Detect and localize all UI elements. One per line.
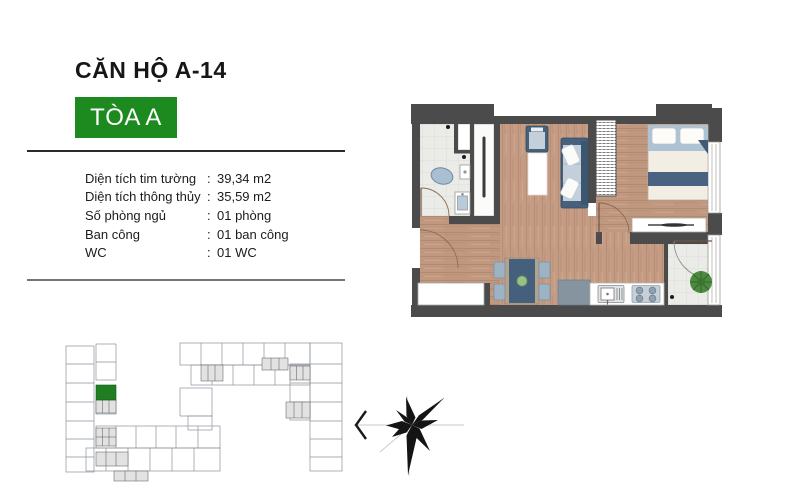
dining-chair xyxy=(539,284,550,300)
spec-separator: : xyxy=(207,171,217,186)
wall-closet-living xyxy=(494,124,500,224)
wall-bedroom-door-stub xyxy=(596,232,602,244)
spec-value: 01 WC xyxy=(217,245,257,260)
spec-label: Diện tích tim tường xyxy=(85,171,207,186)
building-badge: TÒA A xyxy=(75,97,177,138)
spec-value: 35,59 m2 xyxy=(217,189,271,204)
bedroom-window xyxy=(708,142,720,213)
wall-right-upper xyxy=(708,108,722,142)
dining-chair xyxy=(539,262,550,278)
ceiling-spot-icon xyxy=(446,125,450,129)
spec-separator: : xyxy=(207,208,217,223)
pillow xyxy=(652,128,676,144)
table-plant xyxy=(517,276,527,286)
hall-closet xyxy=(474,124,494,216)
spec-value: 39,34 m2 xyxy=(217,171,271,186)
ac-ledge xyxy=(418,283,484,305)
balcony-railing xyxy=(708,235,720,305)
spec-label: Ban công xyxy=(85,227,207,242)
wall-top-left-block xyxy=(411,104,494,124)
spec-label: Số phòng ngủ xyxy=(85,208,207,223)
ceiling-spot-icon xyxy=(462,155,466,159)
burner-icon xyxy=(636,295,643,302)
apartment-floor-plan xyxy=(398,88,732,322)
coffee-table xyxy=(528,153,547,195)
burner-icon xyxy=(649,295,656,302)
dining-table xyxy=(505,258,539,304)
building-badge-label: TÒA A xyxy=(90,104,162,132)
stove xyxy=(632,286,660,303)
core-blocks xyxy=(96,358,310,481)
bathroom-sink xyxy=(455,192,470,214)
page-title: CĂN HỘ A-14 xyxy=(75,57,227,84)
spec-separator: : xyxy=(207,189,217,204)
floor-plan-page: { "header": { "title": "CĂN HỘ A-14", "b… xyxy=(0,0,800,500)
burner-icon xyxy=(636,287,643,294)
spec-row-area-gross: Diện tích tim tường : 39,34 m2 xyxy=(85,169,355,188)
dining-chair xyxy=(494,284,505,300)
kitchen-cabinet xyxy=(558,280,590,305)
wall-top xyxy=(490,116,656,124)
shower-niche xyxy=(454,124,470,154)
spec-table: Diện tích tim tường : 39,34 m2 Diện tích… xyxy=(85,169,355,262)
kitchen-sink xyxy=(598,286,624,305)
bed-runner xyxy=(648,172,708,186)
wall-recess-side xyxy=(484,283,490,305)
wall-balcony-top-stub xyxy=(664,238,674,244)
wall-living-bedroom xyxy=(588,116,596,203)
spec-row-balcony: Ban công : 01 ban công xyxy=(85,225,355,244)
wall-bathroom-closet xyxy=(470,124,474,216)
spec-label: Diện tích thông thủy xyxy=(85,189,207,204)
spec-row-bedrooms: Số phòng ngủ : 01 phòng xyxy=(85,206,355,225)
wall-bathroom-bottom xyxy=(449,216,500,224)
wall-top-right-block xyxy=(656,104,712,124)
spec-separator: : xyxy=(207,245,217,260)
wall-bottom xyxy=(411,305,722,317)
highlighted-unit-a14 xyxy=(96,385,116,400)
spec-value: 01 ban công xyxy=(217,227,289,242)
compass-rose-icon xyxy=(352,380,467,488)
spec-separator: : xyxy=(207,227,217,242)
spec-row-area-net: Diện tích thông thủy : 35,59 m2 xyxy=(85,188,355,207)
drain-dot-icon xyxy=(670,295,674,299)
spec-label: WC xyxy=(85,245,207,260)
bedroom-dresser xyxy=(632,218,706,232)
double-bed xyxy=(648,125,708,200)
dining-chair xyxy=(494,262,505,278)
wall-kitchen-balcony xyxy=(664,244,668,305)
wall-left-upper xyxy=(412,124,420,228)
burner-icon xyxy=(649,287,656,294)
wardrobe xyxy=(596,120,616,196)
armchair xyxy=(526,126,548,152)
balcony-plant xyxy=(690,271,712,293)
divider-bottom xyxy=(27,279,345,281)
building-key-plan xyxy=(58,338,350,484)
wall-right-mid xyxy=(708,213,722,235)
spec-value: 01 phòng xyxy=(217,208,271,223)
spec-row-wc: WC : 01 WC xyxy=(85,243,355,262)
sofa xyxy=(560,138,588,208)
divider-top xyxy=(27,150,345,152)
